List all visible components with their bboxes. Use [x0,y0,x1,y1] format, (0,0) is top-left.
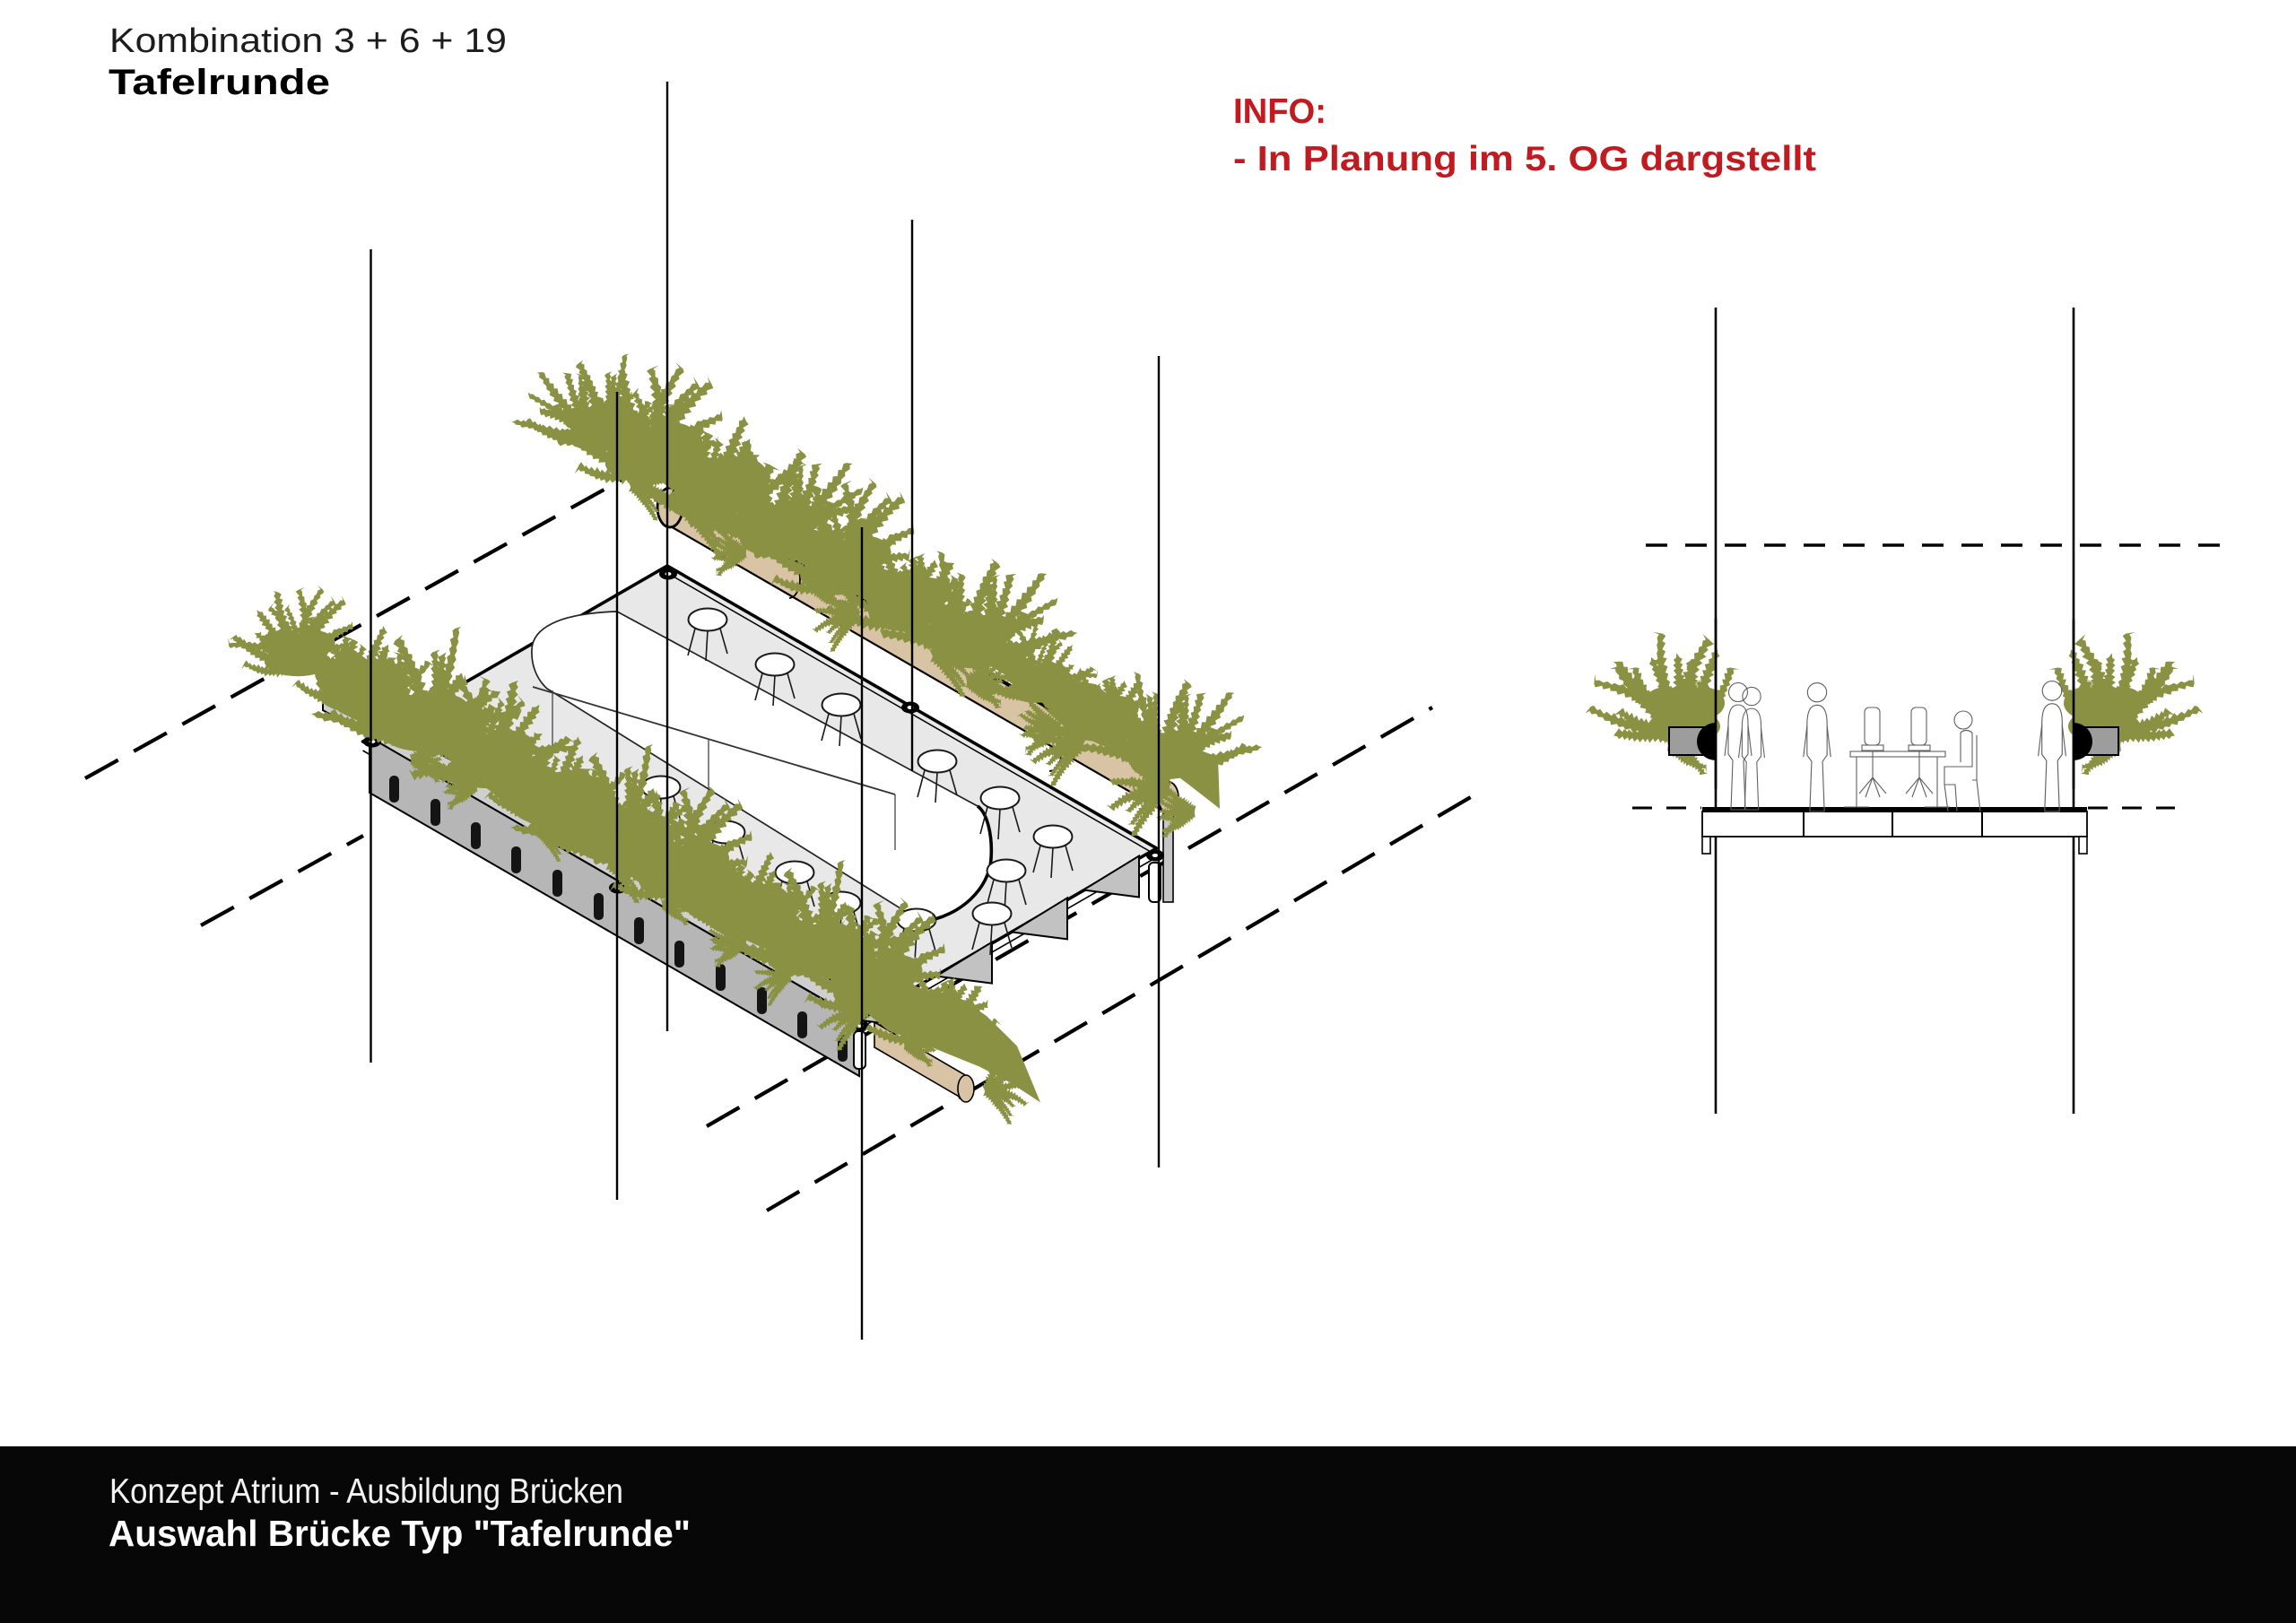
svg-text:Auswahl Brücke Typ "Tafelrunde: Auswahl Brücke Typ "Tafelrunde" [109,1513,691,1554]
svg-text:Tafelrunde: Tafelrunde [109,63,330,102]
svg-text:- In Planung im 5. OG dargstel: - In Planung im 5. OG dargstellt [1233,140,1816,178]
svg-text:Kombination 3 + 6 + 19: Kombination 3 + 6 + 19 [109,22,507,60]
svg-text:INFO:: INFO: [1233,92,1326,131]
svg-text:Konzept Atrium - Ausbildung Br: Konzept Atrium - Ausbildung Brücken [109,1472,623,1511]
